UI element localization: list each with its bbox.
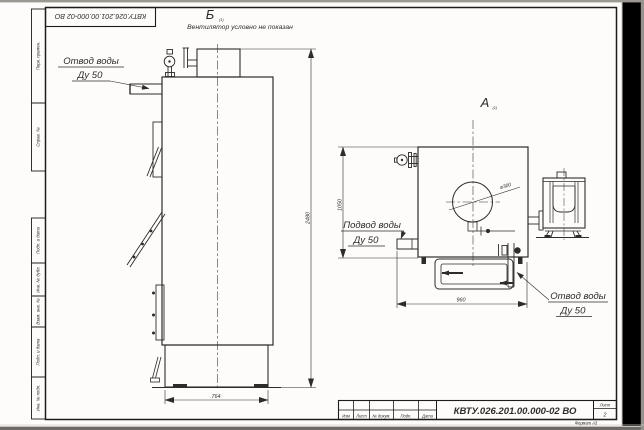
view-b-note: Вентилятор условно не показан [187, 24, 293, 31]
format-label: Формат А3 [575, 420, 598, 425]
drawing-sheet: Перв. примен. Справ. № Подп. и дата Инв.… [0, 0, 644, 430]
margin-label-vzam-inv: Взам. инв. № [36, 298, 41, 325]
callout-outlet-left-line1: Отвод воды [63, 56, 119, 67]
margin-label-sprav-n: Справ. № [36, 127, 41, 147]
margin-label-podp-data-2: Подп. и дата [36, 338, 41, 366]
callout-outlet-left-line2: Ду 50 [77, 70, 103, 81]
dim-height-text: 2480 [306, 212, 312, 225]
title-sheet-label: Лист [599, 403, 611, 408]
title-col-list: Лист [355, 414, 367, 419]
callout-outlet-right-line1: Отвод воды [550, 291, 606, 302]
view-b-label: Б [206, 7, 215, 22]
callout-inlet-line1: Подвод воды [343, 220, 401, 231]
margin-label-inv-dubl: Инв. № дубл. [36, 266, 41, 292]
view-b-sub: (1) [219, 18, 224, 22]
view-a-sub: (1) [493, 106, 498, 110]
view-a-label: А [480, 95, 490, 110]
corner-stamp-doc-number: КВТУ.026.201.00.000-02 ВО [54, 12, 146, 21]
title-col-doc: № докум. [372, 414, 390, 419]
callout-outlet-right-line2: Ду 50 [560, 306, 586, 317]
title-sheet-number: 2 [603, 413, 607, 419]
title-col-podp: Подп. [401, 414, 412, 419]
margin-label-podp-data-1: Подп. и дата [36, 226, 41, 254]
title-col-izm: Изм [342, 414, 350, 419]
callout-inlet-line2: Ду 50 [353, 235, 379, 246]
dim-front-height-text: 1050 [338, 199, 344, 211]
dim-base-text: 764 [212, 394, 221, 400]
margin-label-perv-primen: Перв. примен. [36, 42, 41, 71]
title-col-data: Дата [421, 414, 434, 419]
dim-width-text: 960 [457, 298, 466, 304]
margin-label-inv-podl: Инв. № подл. [36, 385, 41, 412]
title-doc-number: КВТУ.026.201.00.000-02 ВО [454, 406, 577, 417]
